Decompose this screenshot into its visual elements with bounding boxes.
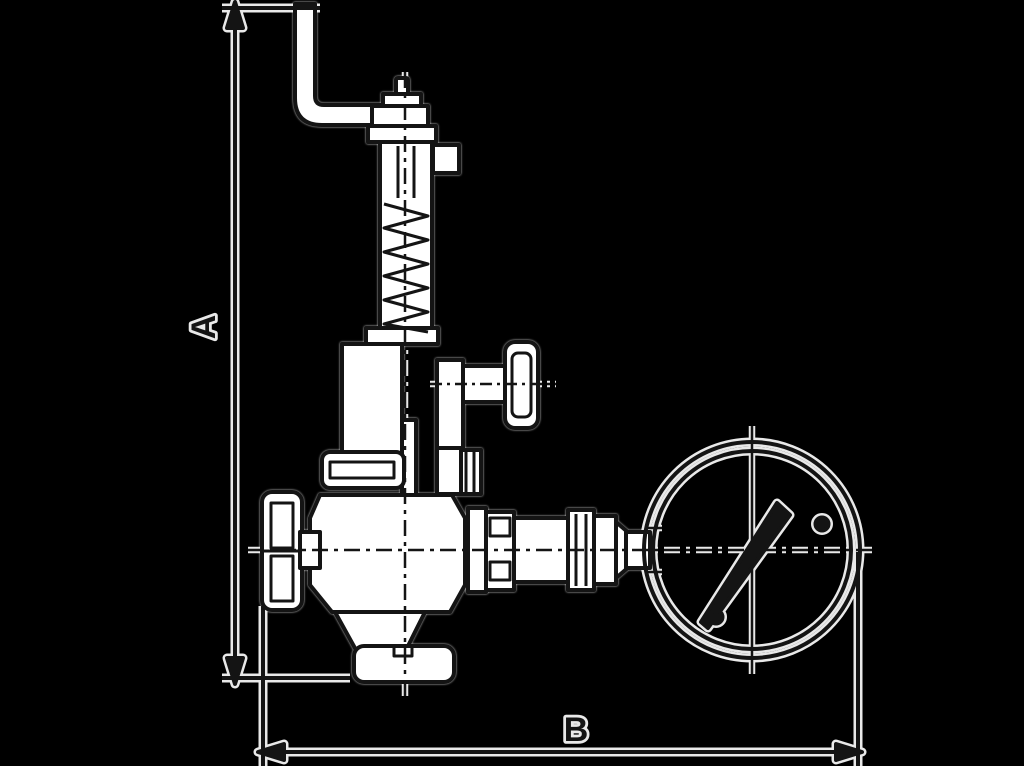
valve-body bbox=[310, 495, 465, 612]
valve-assembly bbox=[262, 4, 650, 682]
valve-dimensional-drawing: A B bbox=[0, 0, 1024, 766]
mid-flange bbox=[322, 452, 404, 488]
bonnet-top-collar bbox=[368, 126, 436, 142]
right-knurl-block bbox=[461, 450, 481, 494]
drawing-canvas: A B bbox=[0, 0, 1024, 766]
upper-column bbox=[342, 344, 402, 459]
branch-root bbox=[437, 360, 463, 450]
lever-pivot-bracket bbox=[433, 145, 459, 173]
right-step-block bbox=[437, 448, 461, 494]
